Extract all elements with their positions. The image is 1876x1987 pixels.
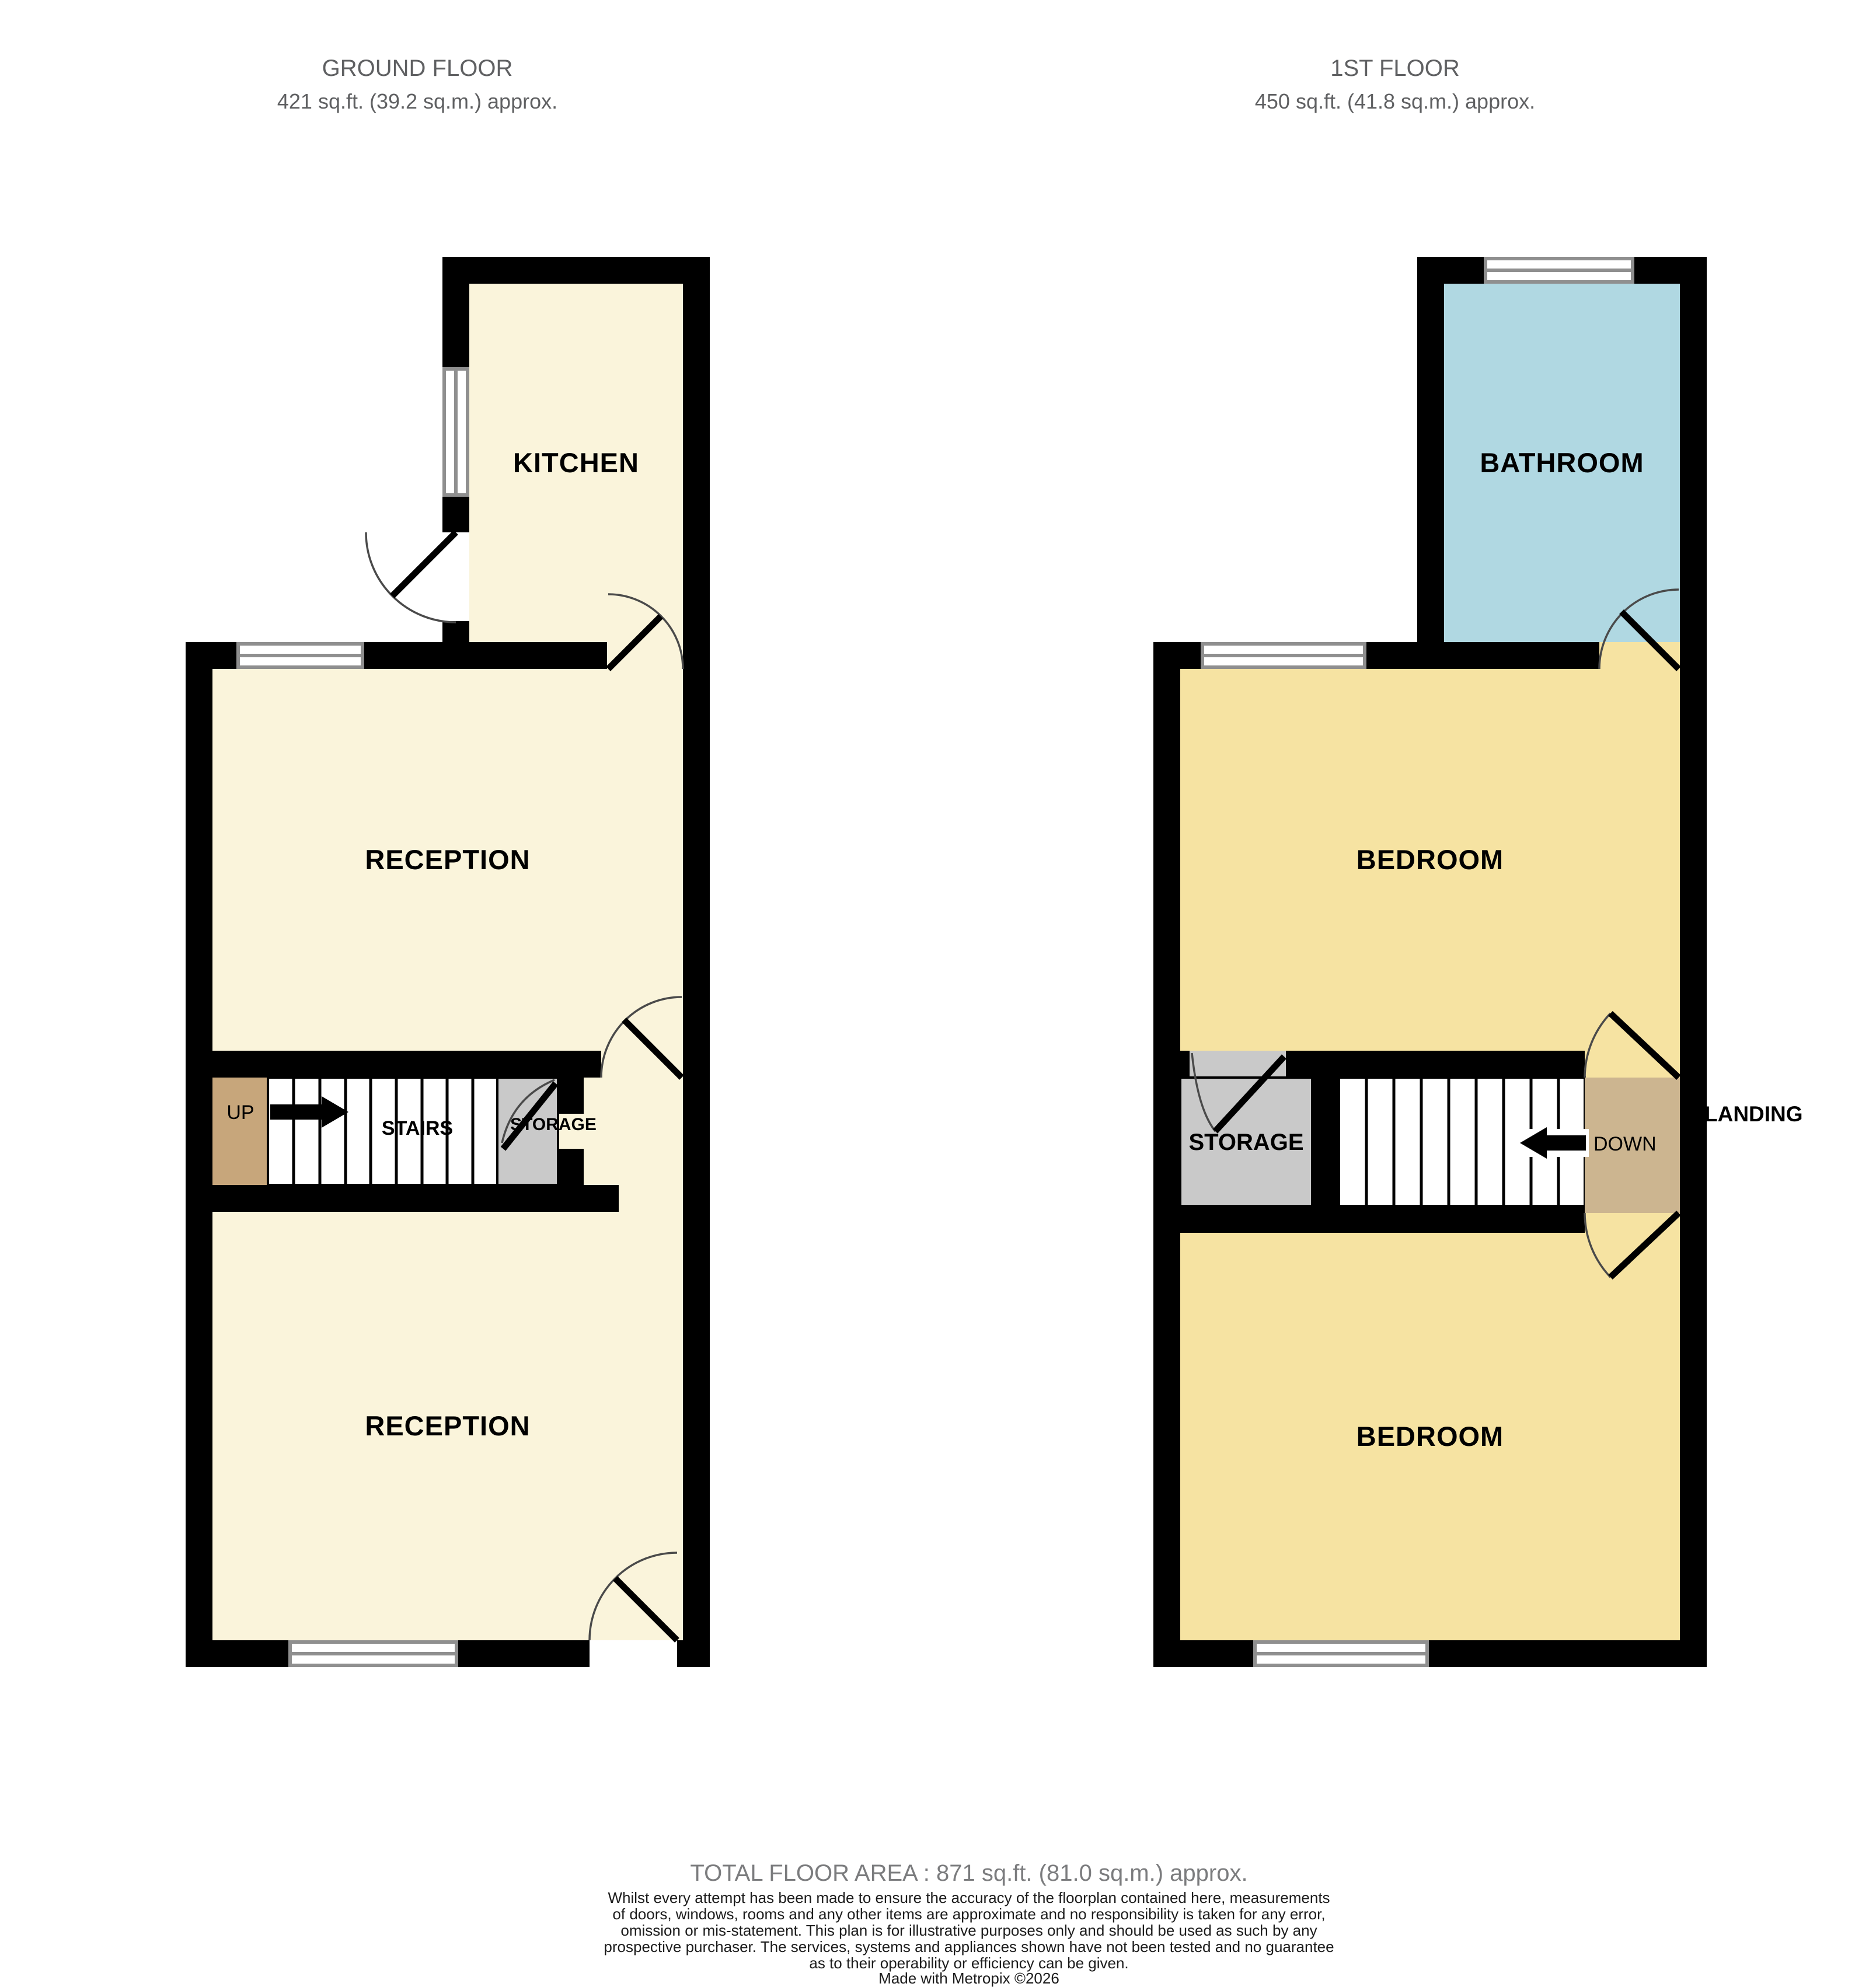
kitchen-window bbox=[444, 369, 468, 495]
storage-wall-stub-bottom bbox=[558, 1149, 584, 1185]
label-landing: LANDING bbox=[1704, 1102, 1803, 1126]
label-bedroom-back: BEDROOM bbox=[1357, 1421, 1504, 1452]
first-floor-plan: BATHROOM BEDROOM BEDROOM STORAGE DOWN LA… bbox=[1153, 257, 1803, 1667]
down-arrow-tail bbox=[1547, 1135, 1586, 1151]
label-ground-storage: STORAGE bbox=[510, 1115, 597, 1134]
kitchen-exterior-door bbox=[366, 532, 456, 622]
up-arrow-tail bbox=[270, 1104, 322, 1120]
storage-wall-stub-top bbox=[558, 1078, 584, 1114]
front-door-opening bbox=[590, 1640, 677, 1667]
label-up: UP bbox=[226, 1101, 254, 1124]
down-arrow bbox=[1514, 1127, 1589, 1159]
reception-back-window bbox=[290, 1642, 456, 1665]
total-floor-area: TOTAL FLOOR AREA : 871 sq.ft. (81.0 sq.m… bbox=[690, 1860, 1247, 1886]
ground-floor-area: 421 sq.ft. (39.2 sq.m.) approx. bbox=[277, 89, 557, 113]
hall-passage-opening bbox=[619, 1185, 683, 1212]
reception-front-window bbox=[238, 644, 362, 667]
bedroom-front-window bbox=[1202, 644, 1365, 667]
label-reception-front: RECEPTION bbox=[365, 844, 530, 875]
bathroom-window bbox=[1486, 259, 1633, 282]
floorplan-canvas: GROUND FLOOR 421 sq.ft. (39.2 sq.m.) app… bbox=[0, 0, 1876, 1987]
label-bathroom: BATHROOM bbox=[1480, 447, 1644, 478]
label-down: DOWN bbox=[1593, 1133, 1657, 1155]
label-bedroom-front: BEDROOM bbox=[1357, 844, 1504, 875]
first-floor-title: 1ST FLOOR bbox=[1330, 55, 1460, 81]
label-stairs: STAIRS bbox=[382, 1117, 453, 1139]
label-kitchen: KITCHEN bbox=[513, 447, 639, 478]
label-first-storage: STORAGE bbox=[1188, 1130, 1303, 1155]
ground-floor-title: GROUND FLOOR bbox=[322, 55, 513, 81]
disclaimer-line: of doors, windows, rooms and any other i… bbox=[612, 1905, 1325, 1923]
stairs-up-landing-cell bbox=[212, 1078, 268, 1185]
metropix-credit: Made with Metropix ©2026 bbox=[878, 1969, 1059, 1987]
footer: TOTAL FLOOR AREA : 871 sq.ft. (81.0 sq.m… bbox=[604, 1860, 1334, 1987]
label-reception-back: RECEPTION bbox=[365, 1410, 530, 1441]
first-floor-area: 450 sq.ft. (41.8 sq.m.) approx. bbox=[1255, 89, 1535, 113]
disclaimer-line: prospective purchaser. The services, sys… bbox=[604, 1938, 1334, 1955]
storage-stairs-wall bbox=[1312, 1078, 1339, 1206]
bedroom-back-window bbox=[1255, 1642, 1427, 1665]
ground-floor-plan: KITCHEN RECEPTION RECEPTION UP STAIRS ST… bbox=[186, 257, 710, 1667]
disclaimer-line: omission or mis-statement. This plan is … bbox=[620, 1922, 1317, 1939]
disclaimer-line: Whilst every attempt has been made to en… bbox=[608, 1889, 1330, 1906]
